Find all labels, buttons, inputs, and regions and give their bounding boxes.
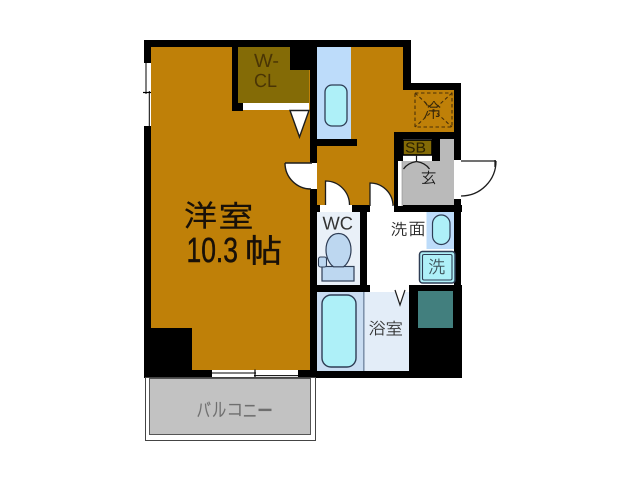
svg-text:SB: SB — [405, 141, 426, 157]
svg-text:WC: WC — [323, 213, 354, 234]
svg-text:10.3: 10.3 — [187, 231, 239, 270]
svg-text:W-: W- — [254, 51, 279, 72]
svg-text:CL: CL — [254, 71, 277, 92]
